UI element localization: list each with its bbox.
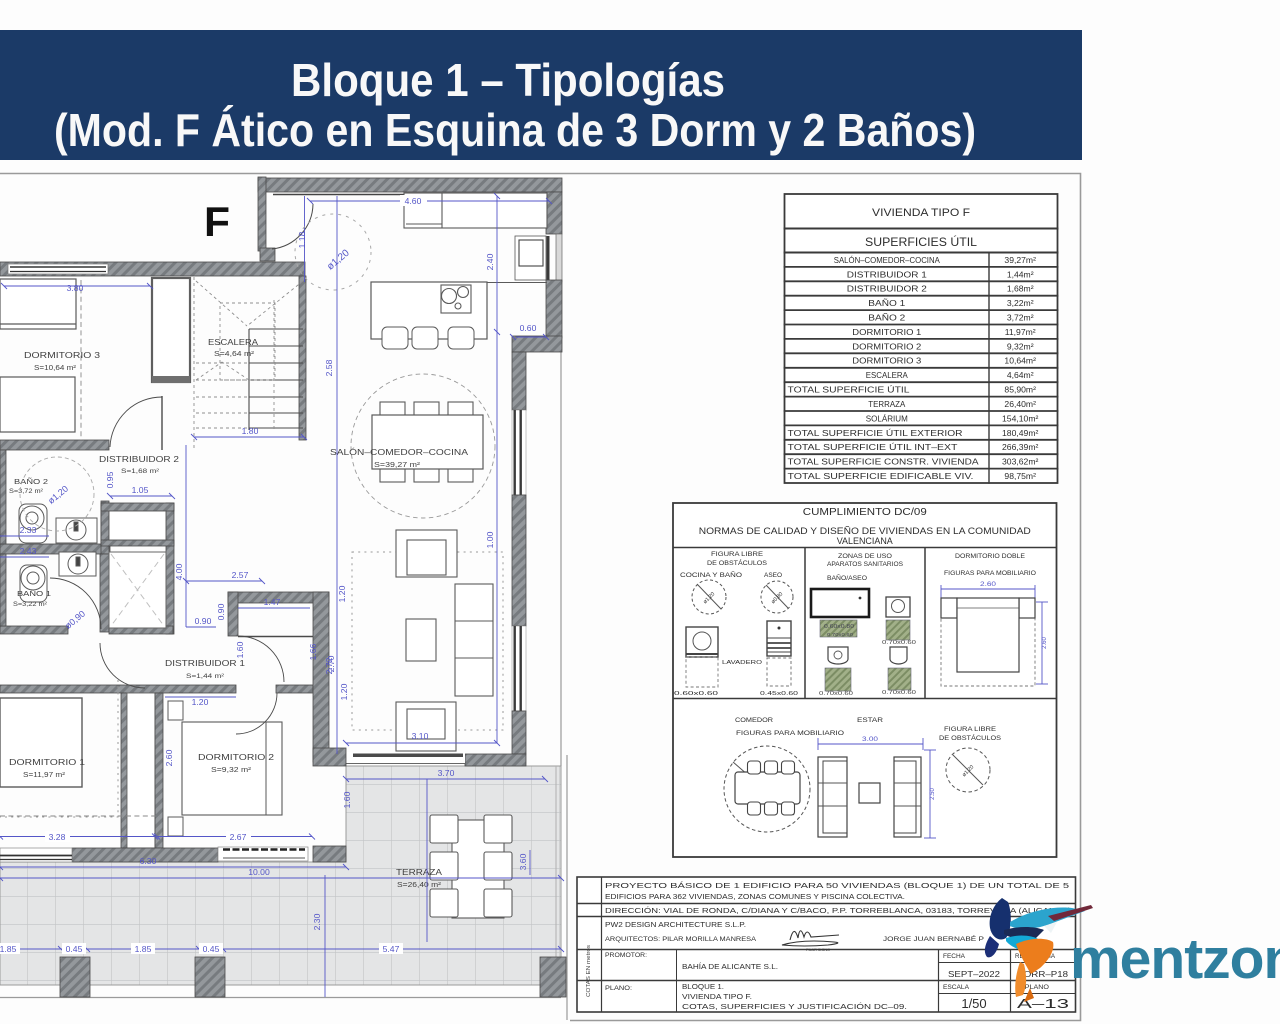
svg-text:COCINA Y BAÑO: COCINA Y BAÑO (680, 572, 742, 579)
svg-text:TOTAL SUPERFICIE ÚTIL: TOTAL SUPERFICIE ÚTIL (788, 385, 910, 395)
svg-text:2.60: 2.60 (980, 582, 997, 588)
svg-text:DORMITORIO 3: DORMITORIO 3 (852, 356, 921, 366)
svg-text:S=39,27 m²: S=39,27 m² (374, 462, 421, 469)
svg-text:6.30: 6.30 (140, 856, 157, 866)
svg-text:1.05: 1.05 (132, 485, 149, 495)
svg-text:mentzone: mentzone (1070, 927, 1280, 991)
svg-text:0.60x0.80: 0.60x0.80 (824, 624, 854, 630)
svg-text:FIGURA LIBRE: FIGURA LIBRE (944, 726, 996, 733)
svg-text:PLANO:: PLANO: (605, 985, 632, 992)
svg-text:3.00: 3.00 (862, 737, 879, 743)
svg-text:SALÓN–COMEDOR–COCINA: SALÓN–COMEDOR–COCINA (834, 255, 940, 265)
svg-text:TERRAZA: TERRAZA (396, 867, 442, 877)
svg-text:NORMAS DE CALIDAD Y DISEÑO: NORMAS DE CALIDAD Y DISEÑO DE VIVIENDAS … (699, 526, 1032, 536)
svg-text:SUPERFICIES ÚTIL: SUPERFICIES ÚTIL (865, 236, 978, 249)
svg-text:1.00: 1.00 (485, 531, 495, 548)
svg-text:DISTRIBUIDOR 2: DISTRIBUIDOR 2 (847, 284, 927, 294)
svg-text:1,44m²: 1,44m² (1007, 269, 1034, 279)
svg-text:S=11,97 m²: S=11,97 m² (23, 772, 66, 779)
svg-text:98,75m²: 98,75m² (1004, 471, 1036, 481)
svg-text:VIVIENDA TIPO F: VIVIENDA TIPO F (872, 207, 970, 219)
svg-text:1.60: 1.60 (342, 791, 352, 808)
svg-text:1/50: 1/50 (961, 996, 986, 1011)
svg-text:2.33: 2.33 (20, 525, 37, 535)
svg-text:DISTRIBUIDOR 1: DISTRIBUIDOR 1 (165, 659, 246, 668)
svg-text:3.60: 3.60 (518, 853, 528, 870)
svg-text:DORMITORIO 1: DORMITORIO 1 (852, 327, 921, 337)
svg-text:1,68m²: 1,68m² (1007, 284, 1034, 294)
svg-text:S=3,22 m²: S=3,22 m² (13, 601, 47, 608)
svg-text:154,10m²: 154,10m² (1002, 413, 1038, 423)
svg-text:ZONAS DE USO: ZONAS DE USO (838, 553, 892, 560)
svg-text:2.30: 2.30 (312, 913, 322, 930)
svg-text:1.47: 1.47 (264, 597, 281, 607)
svg-text:ESCALERA: ESCALERA (866, 370, 908, 380)
svg-text:JORGE JUAN BERNABÉ P: JORGE JUAN BERNABÉ P (883, 934, 985, 943)
svg-text:0.60: 0.60 (520, 323, 537, 333)
svg-text:ESTAR: ESTAR (857, 717, 883, 724)
svg-text:SALÓN–COMEDOR–COCINA: SALÓN–COMEDOR–COCINA (330, 447, 469, 457)
svg-text:SEPT–2022: SEPT–2022 (948, 969, 1000, 979)
svg-text:1.20: 1.20 (192, 697, 209, 707)
svg-text:0.70x0.60: 0.70x0.60 (819, 691, 853, 697)
svg-text:S=1,68 m²: S=1,68 m² (121, 468, 160, 475)
svg-text:10.00: 10.00 (248, 867, 270, 877)
svg-text:2.60: 2.60 (164, 749, 174, 766)
svg-text:TOTAL SUPERFICIE CONSTR. VI: TOTAL SUPERFICIE CONSTR. VIVIENDA (788, 457, 979, 467)
svg-text:1.85: 1.85 (0, 944, 17, 954)
svg-text:A–13: A–13 (1017, 996, 1069, 1011)
svg-text:1.66: 1.66 (308, 643, 318, 660)
svg-text:S=4,64 m²: S=4,64 m² (214, 351, 255, 358)
svg-text:ASEO: ASEO (764, 572, 782, 579)
svg-text:11,97m²: 11,97m² (1005, 327, 1036, 337)
svg-text:0.90: 0.90 (195, 616, 212, 626)
svg-text:TOTAL SUPERFICIE ÚTIL EXTER: TOTAL SUPERFICIE ÚTIL EXTERIOR (788, 428, 963, 438)
svg-text:BAÑO 2: BAÑO 2 (14, 477, 48, 486)
svg-text:2.58: 2.58 (324, 359, 334, 376)
svg-text:2.67: 2.67 (230, 832, 247, 842)
svg-text:FIGURAS PARA MOBILIARIO: FIGURAS PARA MOBILIARIO (944, 570, 1036, 577)
svg-text:S=10,64 m²: S=10,64 m² (34, 365, 77, 372)
svg-text:DORMITORIO DOBLE: DORMITORIO DOBLE (955, 553, 1025, 560)
svg-text:TOTAL SUPERFICIE ÚTIL INT–E: TOTAL SUPERFICIE ÚTIL INT–EXT (788, 442, 959, 452)
svg-text:SOLÁRIUM: SOLÁRIUM (866, 413, 908, 423)
svg-text:5.47: 5.47 (383, 944, 400, 954)
svg-text:2.57: 2.57 (232, 570, 249, 580)
svg-text:CUMPLIMIENTO DC/09: CUMPLIMIENTO DC/09 (803, 506, 927, 518)
svg-text:VIVIENDA TIPO F.: VIVIENDA TIPO F. (682, 994, 752, 1001)
svg-text:2.40: 2.40 (485, 253, 495, 270)
svg-text:180,49m²: 180,49m² (1002, 428, 1038, 438)
svg-text:0.70x0.60: 0.70x0.60 (882, 640, 916, 646)
svg-text:Bloque 1 – Tipologías: Bloque 1 – Tipologías (291, 54, 725, 106)
svg-text:3,22m²: 3,22m² (1007, 298, 1034, 308)
svg-text:2.70: 2.70 (326, 655, 336, 672)
svg-text:1.60: 1.60 (235, 641, 245, 658)
svg-text:TERRAZA: TERRAZA (868, 399, 905, 409)
svg-text:FECHA: FECHA (943, 954, 965, 960)
svg-text:9,32m²: 9,32m² (1007, 341, 1034, 351)
svg-text:1.85: 1.85 (135, 944, 152, 954)
svg-text:266,39m²: 266,39m² (1002, 442, 1038, 452)
svg-text:0.45: 0.45 (203, 944, 220, 954)
svg-text:0.60x0.60: 0.60x0.60 (674, 691, 718, 697)
svg-text:(Mod. F Ático en Esquina de 3: (Mod. F Ático en Esquina de 3 Dorm y 2 B… (54, 104, 976, 156)
svg-text:BLOQUE 1.: BLOQUE 1. (682, 984, 724, 991)
svg-text:COTAS EN metros: COTAS EN metros (586, 945, 592, 997)
svg-text:3.28: 3.28 (49, 832, 66, 842)
svg-text:2.43: 2.43 (20, 546, 37, 556)
svg-text:F: F (204, 198, 230, 245)
svg-text:DORMITORIO 2: DORMITORIO 2 (198, 752, 274, 762)
svg-text:ESCALERA: ESCALERA (208, 337, 258, 347)
svg-text:BAÑO 1: BAÑO 1 (17, 589, 51, 598)
svg-text:DISTRIBUIDOR 2: DISTRIBUIDOR 2 (99, 455, 180, 464)
svg-text:1.20: 1.20 (339, 683, 349, 700)
svg-text:PROYECTO BÁSICO DE 1 EDIFI: PROYECTO BÁSICO DE 1 EDIFICIO PARA 50 VI… (605, 881, 1069, 890)
svg-text:85,90m²: 85,90m² (1004, 385, 1036, 395)
svg-text:S=26,40 m²: S=26,40 m² (397, 882, 442, 889)
svg-text:0.70x0.60: 0.70x0.60 (827, 632, 854, 637)
svg-text:TOTAL SUPERFICIE EDIFICABLE: TOTAL SUPERFICIE EDIFICABLE VIV. (788, 471, 974, 481)
svg-text:2.50: 2.50 (930, 788, 936, 800)
svg-text:ARQUITECTOS: PILAR MORILLA: ARQUITECTOS: PILAR MORILLA MANRESA (605, 936, 757, 943)
svg-text:VALENCIANA: VALENCIANA (837, 536, 893, 546)
svg-text:DORMITORIO 3: DORMITORIO 3 (24, 350, 100, 360)
svg-text:10,64m²: 10,64m² (1004, 356, 1036, 366)
svg-text:0.90: 0.90 (216, 603, 226, 620)
svg-text:4.60: 4.60 (405, 196, 422, 206)
svg-text:DISTRIBUIDOR 1: DISTRIBUIDOR 1 (847, 269, 927, 279)
svg-text:EDIFICIOS PARA 362 VIVIENDA: EDIFICIOS PARA 362 VIVIENDAS, ZONAS COMU… (605, 892, 905, 901)
svg-text:1.18: 1.18 (297, 231, 307, 248)
svg-text:0.70x0.60: 0.70x0.60 (882, 690, 916, 696)
svg-text:S=9,32 m²: S=9,32 m² (211, 767, 252, 774)
svg-text:0.45x0.60: 0.45x0.60 (760, 691, 798, 697)
svg-text:S=3,72 m²: S=3,72 m² (9, 488, 43, 495)
svg-text:FIGURAS PARA MOBILIARIO: FIGURAS PARA MOBILIARIO (736, 730, 844, 737)
svg-text:4.00: 4.00 (174, 563, 184, 580)
svg-text:303,62m²: 303,62m² (1002, 457, 1038, 467)
svg-text:APARATOS SANITARIOS: APARATOS SANITARIOS (827, 561, 903, 568)
svg-text:4,64m²: 4,64m² (1007, 370, 1034, 380)
svg-text:BAÑO 1: BAÑO 1 (868, 298, 905, 308)
svg-text:DORMITORIO 2: DORMITORIO 2 (852, 341, 921, 351)
svg-text:PW2 DESIGN ARCHITECTURE S.L: PW2 DESIGN ARCHITECTURE S.L.P. (605, 920, 746, 929)
svg-text:3,72m²: 3,72m² (1007, 313, 1034, 323)
svg-text:1.80: 1.80 (242, 426, 259, 436)
svg-text:S=1,44 m²: S=1,44 m² (186, 673, 225, 680)
svg-text:3.70: 3.70 (438, 768, 455, 778)
svg-text:PILAR SIGNO: PILAR SIGNO (806, 948, 830, 952)
svg-text:39,27m²: 39,27m² (1004, 255, 1036, 265)
svg-text:DE OBSTÁCULOS: DE OBSTÁCULOS (707, 560, 767, 567)
svg-text:DORMITORIO 1: DORMITORIO 1 (9, 757, 85, 767)
svg-text:0.45: 0.45 (66, 944, 83, 954)
svg-text:BAHÍA DE ALICANTE S.L.: BAHÍA DE ALICANTE S.L. (682, 962, 778, 971)
svg-text:BAÑO 2: BAÑO 2 (868, 313, 905, 323)
svg-text:3.80: 3.80 (67, 283, 84, 293)
svg-text:FIGURA LIBRE: FIGURA LIBRE (711, 551, 763, 558)
svg-text:1.20: 1.20 (337, 585, 347, 602)
svg-text:3.10: 3.10 (412, 731, 429, 741)
svg-text:2.60: 2.60 (1042, 637, 1048, 649)
svg-text:COTAS, SUPERFICIES Y JUSTIF: COTAS, SUPERFICIES Y JUSTIFICACIÓN DC–09… (682, 1002, 907, 1011)
svg-text:LAVADERO: LAVADERO (722, 660, 763, 666)
svg-text:26,40m²: 26,40m² (1004, 399, 1036, 409)
svg-text:PROMOTOR:: PROMOTOR: (605, 952, 647, 959)
svg-text:COMEDOR: COMEDOR (735, 717, 773, 724)
svg-text:ESCALA: ESCALA (943, 985, 969, 991)
svg-text:BAÑO/ASEO: BAÑO/ASEO (827, 573, 867, 582)
svg-text:DE OBSTÁCULOS: DE OBSTÁCULOS (939, 735, 1001, 742)
svg-text:0.95: 0.95 (105, 471, 115, 488)
